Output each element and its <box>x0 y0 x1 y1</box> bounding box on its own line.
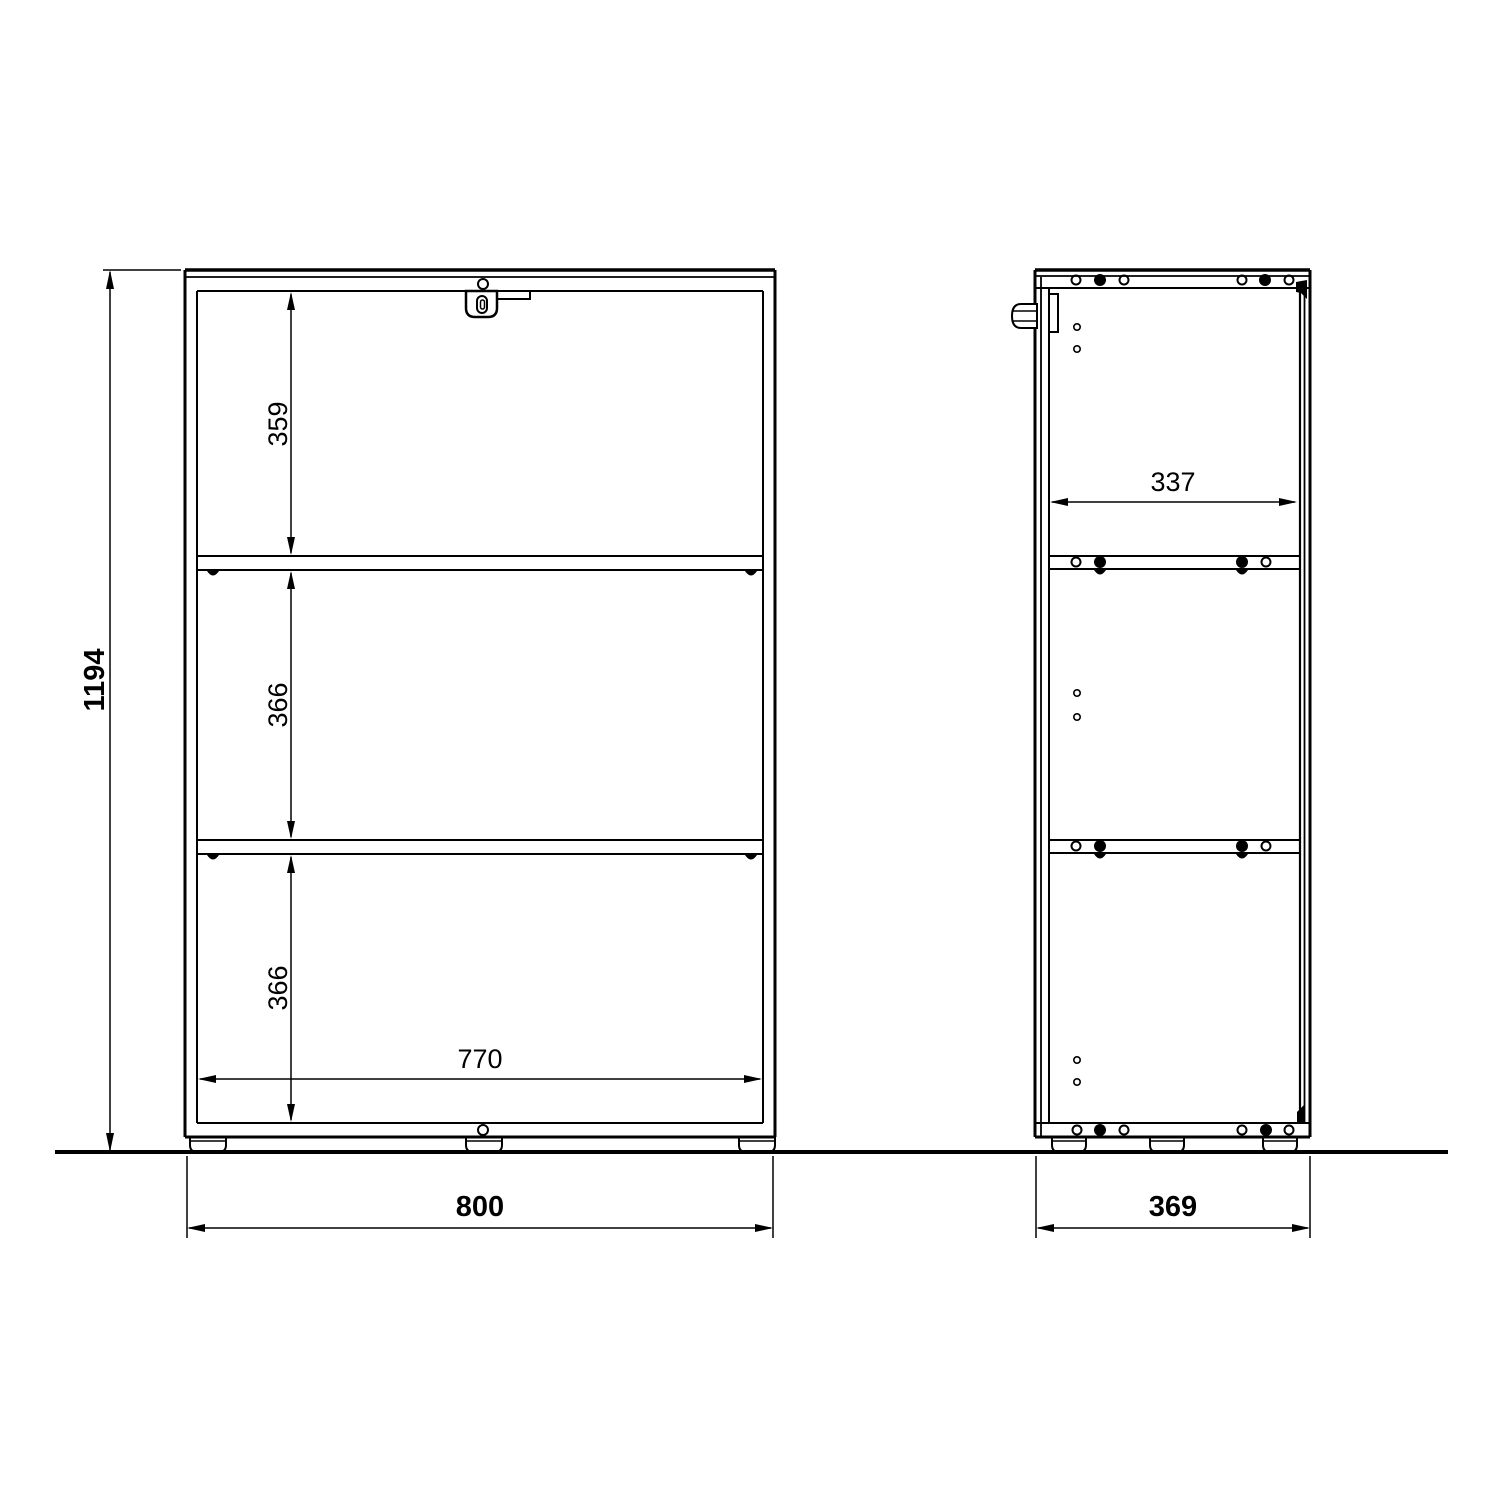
bottom-panel-hole <box>478 1125 488 1135</box>
side-shelf-2 <box>1049 840 1300 859</box>
foot <box>466 1137 502 1152</box>
side-shelf-1 <box>1049 556 1300 575</box>
compartment-top-label: 359 <box>263 401 293 446</box>
dimension-compartment-bottom: 366 <box>263 855 295 1122</box>
technical-drawing-canvas: 1194 359 366 366 770 800 <box>0 0 1500 1500</box>
dimension-inner-width: 770 <box>198 1044 762 1083</box>
overall-height-label: 1194 <box>79 649 111 712</box>
cabinet-dimension-drawing: 1194 359 366 366 770 800 <box>0 0 1500 1500</box>
back-hook-top <box>1296 280 1307 299</box>
front-shelf-1 <box>197 556 763 576</box>
foot <box>1150 1137 1184 1152</box>
side-feet <box>1052 1137 1297 1152</box>
side-carcass <box>1035 270 1310 1137</box>
lock-tab <box>497 291 530 299</box>
lock-plate <box>1049 294 1058 332</box>
front-shelf-2 <box>197 840 763 860</box>
lock-slot <box>477 296 487 313</box>
shelf-pin <box>1094 854 1106 859</box>
compartment-bottom-label: 366 <box>263 965 293 1010</box>
side-view <box>1012 270 1310 1152</box>
shelf-pin <box>1094 570 1106 575</box>
overall-width-label: 800 <box>456 1191 504 1223</box>
shelf-pin <box>745 855 757 860</box>
overall-depth-label: 369 <box>1149 1191 1197 1223</box>
side-wall-holes <box>1074 324 1080 1085</box>
dimension-overall-depth: 369 <box>1036 1156 1310 1238</box>
front-feet <box>190 1137 775 1152</box>
inner-depth-label: 337 <box>1150 467 1195 497</box>
lock-knob <box>1012 304 1037 328</box>
inner-width-label: 770 <box>457 1044 502 1074</box>
dimension-overall-height: 1194 <box>79 270 181 1152</box>
foot <box>739 1137 775 1152</box>
foot <box>190 1137 226 1152</box>
shelf-pin <box>1236 570 1248 575</box>
dimension-inner-depth: 337 <box>1050 467 1297 506</box>
foot <box>1263 1137 1297 1152</box>
shelf-pin <box>207 571 219 576</box>
dimension-compartment-top: 359 <box>263 292 295 555</box>
dimension-overall-width: 800 <box>187 1156 773 1238</box>
lock-fitting <box>466 291 530 317</box>
compartment-middle-label: 366 <box>263 682 293 727</box>
side-bottom-panel-holes <box>1073 1124 1294 1136</box>
shelf-pin <box>745 571 757 576</box>
shelf-pin <box>207 855 219 860</box>
dimension-compartment-middle: 366 <box>263 571 295 839</box>
top-panel-hole <box>478 279 488 289</box>
foot <box>1052 1137 1086 1152</box>
shelf-pin <box>1236 854 1248 859</box>
